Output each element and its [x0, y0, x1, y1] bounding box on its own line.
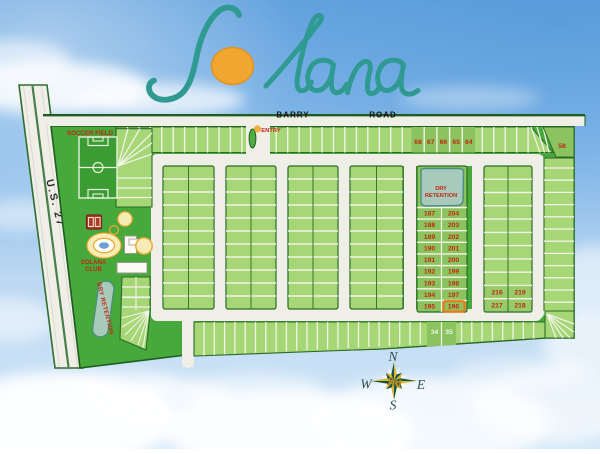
- svg-text:ROAD: ROAD: [369, 111, 397, 120]
- svg-text:202: 202: [448, 234, 460, 241]
- svg-text:188: 188: [424, 222, 436, 229]
- svg-text:187: 187: [424, 211, 436, 218]
- svg-text:216: 216: [491, 289, 503, 296]
- svg-text:195: 195: [424, 303, 436, 310]
- svg-text:BARRY: BARRY: [276, 111, 309, 120]
- svg-text:203: 203: [448, 222, 460, 229]
- svg-text:SOCCER FIELD: SOCCER FIELD: [67, 130, 114, 137]
- svg-text:192: 192: [424, 269, 436, 276]
- svg-text:66: 66: [440, 139, 448, 146]
- svg-text:N: N: [387, 349, 398, 364]
- svg-text:ENTRY: ENTRY: [261, 128, 281, 134]
- svg-text:67: 67: [427, 139, 435, 146]
- svg-text:218: 218: [514, 303, 526, 310]
- svg-text:65: 65: [452, 139, 460, 146]
- svg-text:200: 200: [448, 257, 460, 264]
- svg-text:35: 35: [445, 329, 453, 336]
- svg-text:CLUB: CLUB: [85, 267, 102, 273]
- svg-text:197: 197: [448, 292, 460, 299]
- svg-text:SOLANA: SOLANA: [81, 260, 107, 266]
- svg-text:193: 193: [424, 280, 436, 287]
- svg-text:64: 64: [465, 139, 473, 146]
- svg-text:68: 68: [414, 139, 422, 146]
- svg-text:58: 58: [558, 143, 566, 150]
- svg-text:196: 196: [448, 303, 460, 310]
- svg-text:189: 189: [424, 234, 436, 241]
- svg-text:RETENTION: RETENTION: [425, 193, 457, 199]
- svg-text:DRY: DRY: [435, 186, 447, 192]
- svg-text:194: 194: [424, 292, 436, 299]
- svg-text:S: S: [390, 398, 397, 413]
- svg-text:34: 34: [431, 329, 439, 336]
- svg-text:E: E: [416, 377, 426, 392]
- svg-text:204: 204: [448, 211, 460, 218]
- svg-text:217: 217: [491, 303, 503, 310]
- svg-text:191: 191: [424, 257, 436, 264]
- svg-text:219: 219: [514, 289, 526, 296]
- svg-text:201: 201: [448, 245, 460, 252]
- svg-text:M: M: [392, 379, 403, 390]
- svg-text:198: 198: [448, 280, 460, 287]
- svg-text:199: 199: [448, 269, 460, 276]
- svg-text:W: W: [360, 377, 373, 392]
- svg-text:190: 190: [424, 245, 436, 252]
